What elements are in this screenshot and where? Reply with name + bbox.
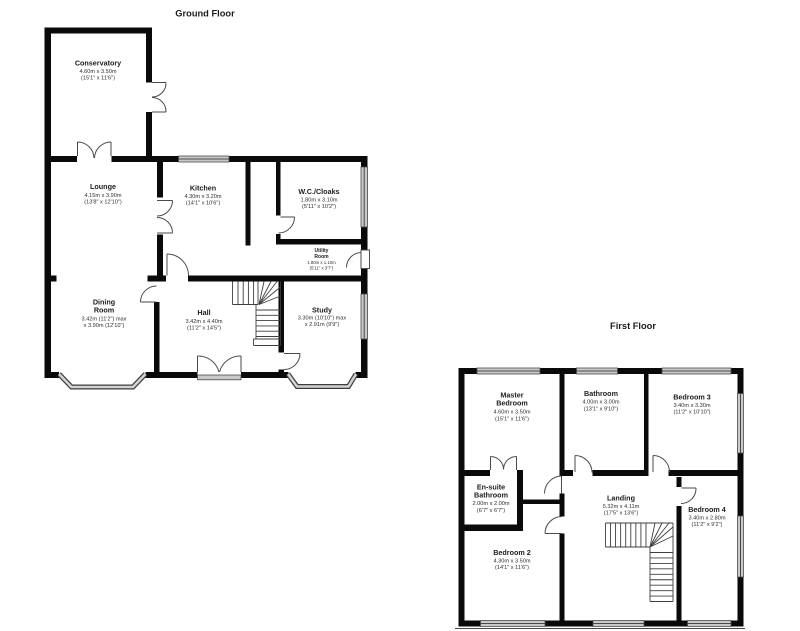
svg-text:First Floor: First Floor bbox=[610, 321, 656, 331]
svg-text:x 2.91m (9'9"): x 2.91m (9'9") bbox=[305, 322, 340, 328]
svg-text:4.60m x 3.50m: 4.60m x 3.50m bbox=[494, 410, 531, 416]
svg-text:(14'1" x 11'6"): (14'1" x 11'6") bbox=[495, 565, 529, 571]
svg-text:(5'11" x 3'7"): (5'11" x 3'7") bbox=[310, 266, 334, 271]
svg-text:3.40m x 2.80m: 3.40m x 2.80m bbox=[689, 516, 726, 522]
svg-text:2.00m x 2.00m: 2.00m x 2.00m bbox=[473, 501, 510, 507]
svg-text:3.30m (10'10") max: 3.30m (10'10") max bbox=[298, 316, 347, 322]
svg-text:x 3.90m (12'10"): x 3.90m (12'10") bbox=[84, 323, 125, 329]
svg-text:Room: Room bbox=[94, 306, 114, 315]
svg-text:3.40m x 3.30m: 3.40m x 3.30m bbox=[674, 403, 711, 409]
svg-text:(13'8" x 12'10"): (13'8" x 12'10") bbox=[84, 200, 122, 206]
svg-text:Bedroom 3: Bedroom 3 bbox=[673, 393, 711, 402]
svg-text:(15'1" x 11'6"): (15'1" x 11'6") bbox=[495, 417, 529, 423]
svg-text:4.30m x 3.50m: 4.30m x 3.50m bbox=[494, 559, 531, 565]
svg-text:1.80m x 1.10m: 1.80m x 1.10m bbox=[307, 260, 336, 265]
svg-text:4.30m x 3.20m: 4.30m x 3.20m bbox=[185, 194, 222, 200]
svg-text:(11'2" x 9'2"): (11'2" x 9'2") bbox=[692, 522, 723, 528]
svg-text:(5'11" x 10'2"): (5'11" x 10'2") bbox=[302, 204, 336, 210]
svg-text:Kitchen: Kitchen bbox=[190, 184, 216, 193]
svg-text:1.80m x 3.10m: 1.80m x 3.10m bbox=[301, 198, 338, 204]
svg-text:4.00m x 3.00m: 4.00m x 3.00m bbox=[583, 400, 620, 406]
svg-text:(11'2" x 14'5"): (11'2" x 14'5") bbox=[187, 326, 221, 332]
svg-text:(13'1" x 9'10"): (13'1" x 9'10") bbox=[584, 407, 619, 413]
svg-text:Bathroom: Bathroom bbox=[584, 389, 618, 398]
svg-text:Ground Floor: Ground Floor bbox=[175, 9, 235, 19]
svg-text:(15'1" x 11'6"): (15'1" x 11'6") bbox=[81, 76, 115, 82]
svg-text:(14'1" x 10'6"): (14'1" x 10'6") bbox=[186, 201, 221, 207]
svg-text:Conservatory: Conservatory bbox=[75, 59, 121, 68]
svg-text:4.15m x 3.90m: 4.15m x 3.90m bbox=[85, 193, 122, 199]
svg-text:Hall: Hall bbox=[197, 308, 210, 317]
svg-text:Study: Study bbox=[312, 306, 332, 315]
svg-text:Lounge: Lounge bbox=[90, 182, 116, 191]
svg-text:(17'5" x 13'6"): (17'5" x 13'6") bbox=[604, 511, 639, 517]
svg-text:(11'2" x 10'10"): (11'2" x 10'10") bbox=[673, 410, 710, 416]
svg-text:Landing: Landing bbox=[607, 494, 635, 503]
svg-text:Bathroom: Bathroom bbox=[474, 491, 508, 500]
svg-text:Bedroom: Bedroom bbox=[496, 399, 528, 408]
svg-text:Bedroom 4: Bedroom 4 bbox=[688, 505, 726, 514]
svg-text:5.32m x 4.11m: 5.32m x 4.11m bbox=[603, 504, 640, 510]
svg-text:3.42m (11'2") max: 3.42m (11'2") max bbox=[82, 317, 127, 323]
svg-text:(6'7" x 6'7"): (6'7" x 6'7") bbox=[477, 508, 505, 514]
svg-text:4.60m x 3.50m: 4.60m x 3.50m bbox=[80, 69, 117, 75]
svg-text:Bedroom 2: Bedroom 2 bbox=[493, 548, 531, 557]
svg-text:3.42m x 4.40m: 3.42m x 4.40m bbox=[186, 319, 223, 325]
svg-text:W.C./Cloaks: W.C./Cloaks bbox=[298, 187, 339, 196]
